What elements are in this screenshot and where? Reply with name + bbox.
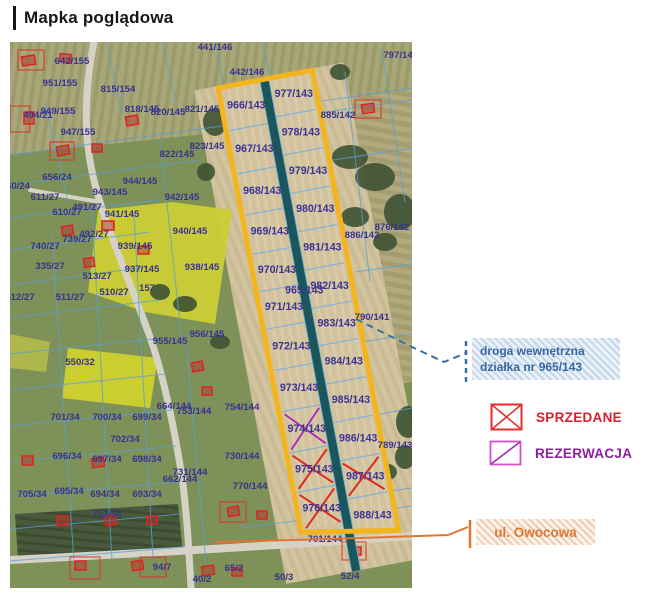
parcel-number: 940/145 xyxy=(173,226,208,237)
parcel-number: 610/27 xyxy=(52,207,81,218)
parcel-number: 754/144 xyxy=(225,402,260,413)
parcel-number: 50/3 xyxy=(275,572,294,583)
parcel-number: 823/145 xyxy=(190,141,225,152)
parcel-number: 656/24 xyxy=(42,172,72,183)
parcel-number: 700/34 xyxy=(92,412,122,423)
aerial-map: 966/143967/143968/143969/143970/143971/1… xyxy=(10,42,412,588)
parcel-number: 938/145 xyxy=(185,262,220,273)
building xyxy=(361,103,374,114)
building xyxy=(83,257,94,267)
plot-number: 967/143 xyxy=(235,143,273,155)
parcel-number: 694/34 xyxy=(90,489,120,500)
parcel-number: 494/21 xyxy=(23,110,53,121)
parcel-number: 815/154 xyxy=(101,84,136,95)
parcel-number: 510/27 xyxy=(99,287,128,298)
parcel-number: 947/155 xyxy=(61,127,96,138)
reserved-swatch-icon xyxy=(489,440,522,466)
plot-number: 980/143 xyxy=(296,203,334,215)
legend-sold-label: SPRZEDANE xyxy=(536,410,622,425)
plot-number: 969/143 xyxy=(251,225,289,237)
plot-number: 973/143 xyxy=(280,382,318,394)
parcel-number: 790/141 xyxy=(355,312,390,323)
legend-reserved: REZERWACJA xyxy=(489,440,632,466)
parcel-number: 441/146 xyxy=(198,42,233,53)
building xyxy=(191,361,203,372)
road-note-line1: droga wewnętrzna xyxy=(480,343,612,359)
building xyxy=(202,387,212,395)
parcel-number: 513/27 xyxy=(82,271,111,282)
parcel-number: 550/32 xyxy=(65,357,94,368)
parcel-number: 955/145 xyxy=(153,336,188,347)
page-title: Mapka poglądowa xyxy=(13,6,173,30)
parcel-number: 701/34 xyxy=(50,412,80,423)
parcel-number: 822/145 xyxy=(160,149,195,160)
parcel-number: 797/14 xyxy=(383,50,412,61)
parcel-number: 939/145 xyxy=(118,241,153,252)
parcel-number: 335/27 xyxy=(35,261,64,272)
plot-number: 977/143 xyxy=(275,88,313,100)
parcel-number: 789/143 xyxy=(378,440,412,451)
parcel-number: 821/145 xyxy=(185,104,220,115)
plot-number: 966/143 xyxy=(227,100,265,112)
plot-number: 986/143 xyxy=(339,432,377,444)
plot-number: 975/143 xyxy=(295,463,333,475)
plot-number: 985/143 xyxy=(332,394,370,406)
parcel-number: 60/24 xyxy=(10,181,31,192)
parcel-number: 951/155 xyxy=(43,78,78,89)
building xyxy=(257,511,267,519)
building xyxy=(131,560,143,570)
plot-number: 988/143 xyxy=(353,509,391,521)
building xyxy=(57,516,68,525)
road-note: droga wewnętrzna działka nr 965/143 xyxy=(472,338,620,380)
building xyxy=(21,55,35,66)
parcel-number: 943/145 xyxy=(93,187,128,198)
parcel-number: 662/144 xyxy=(163,474,198,485)
parcel-number: 730/144 xyxy=(225,451,260,462)
sold-swatch-icon xyxy=(490,403,523,431)
plot-number: 971/143 xyxy=(265,301,303,313)
parcel-number: 611/27 xyxy=(31,192,60,203)
parcel-number: 941/145 xyxy=(105,209,140,220)
parcel-number: 40/2 xyxy=(193,574,212,585)
parcel-number: 740/27 xyxy=(30,241,59,252)
legend-sold: SPRZEDANE xyxy=(490,403,622,431)
parcel-number: 876/142 xyxy=(375,222,410,233)
parcel-number: 937/145 xyxy=(125,264,160,275)
plot-number: 970/143 xyxy=(258,264,296,276)
parcel-number: 885/142 xyxy=(321,110,356,121)
parcel-number: 944/145 xyxy=(123,176,158,187)
plot-number: 981/143 xyxy=(303,242,341,254)
internal-road-number: 965/143 xyxy=(285,285,323,297)
parcel-number: 642/155 xyxy=(55,56,90,67)
parcel-number: 442/146 xyxy=(230,67,265,78)
building xyxy=(147,516,157,524)
parcel-number: 956/145 xyxy=(190,329,225,340)
parcel-number: 942/145 xyxy=(165,192,200,203)
parcel-number: 697/34 xyxy=(92,454,122,465)
parcel-number: 94/7 xyxy=(153,562,172,573)
road-note-line2: działka nr 965/143 xyxy=(480,359,612,375)
parcel-number: 770/144 xyxy=(233,481,268,492)
parcel-number: 753/144 xyxy=(177,406,212,417)
building xyxy=(56,145,69,156)
legend-reserved-label: REZERWACJA xyxy=(535,446,632,461)
plot-number: 984/143 xyxy=(325,356,363,368)
building xyxy=(22,456,33,465)
building xyxy=(125,115,138,126)
plot-number: 987/143 xyxy=(346,471,384,483)
parcel-number: 698/34 xyxy=(132,454,162,465)
parcel-number: 699/34 xyxy=(132,412,162,423)
parcel-number: 512/27 xyxy=(10,292,35,303)
parcel-number: 65/2 xyxy=(225,563,244,574)
parcel-number: 511/27 xyxy=(56,292,85,303)
plot-number: 976/143 xyxy=(303,503,341,515)
parcel-number: 701/144 xyxy=(308,534,343,545)
parcel-number: 696/34 xyxy=(52,451,82,462)
parcel-number: 693/34 xyxy=(132,489,162,500)
plot-number: 983/143 xyxy=(318,318,356,330)
plot-number: 968/143 xyxy=(243,185,281,197)
street-label: ul. Owocowa xyxy=(476,519,595,545)
parcel-number: 52/4 xyxy=(341,571,360,582)
building xyxy=(75,561,86,570)
parcel-number: 820/145 xyxy=(151,107,186,118)
parcel-number: 739/27 xyxy=(62,234,91,245)
parcel-number: 705/34 xyxy=(17,489,47,500)
parcel-number: 713/34 xyxy=(92,509,122,520)
parcel-number: 157 xyxy=(139,283,155,294)
parcel-number: 702/34 xyxy=(110,434,140,445)
building xyxy=(92,144,102,152)
plot-number: 974/143 xyxy=(288,423,326,435)
building xyxy=(227,506,239,517)
plot-number: 978/143 xyxy=(282,127,320,139)
plot-number: 979/143 xyxy=(289,165,327,177)
plot-number: 972/143 xyxy=(272,340,310,352)
parcel-number: 695/34 xyxy=(54,486,84,497)
